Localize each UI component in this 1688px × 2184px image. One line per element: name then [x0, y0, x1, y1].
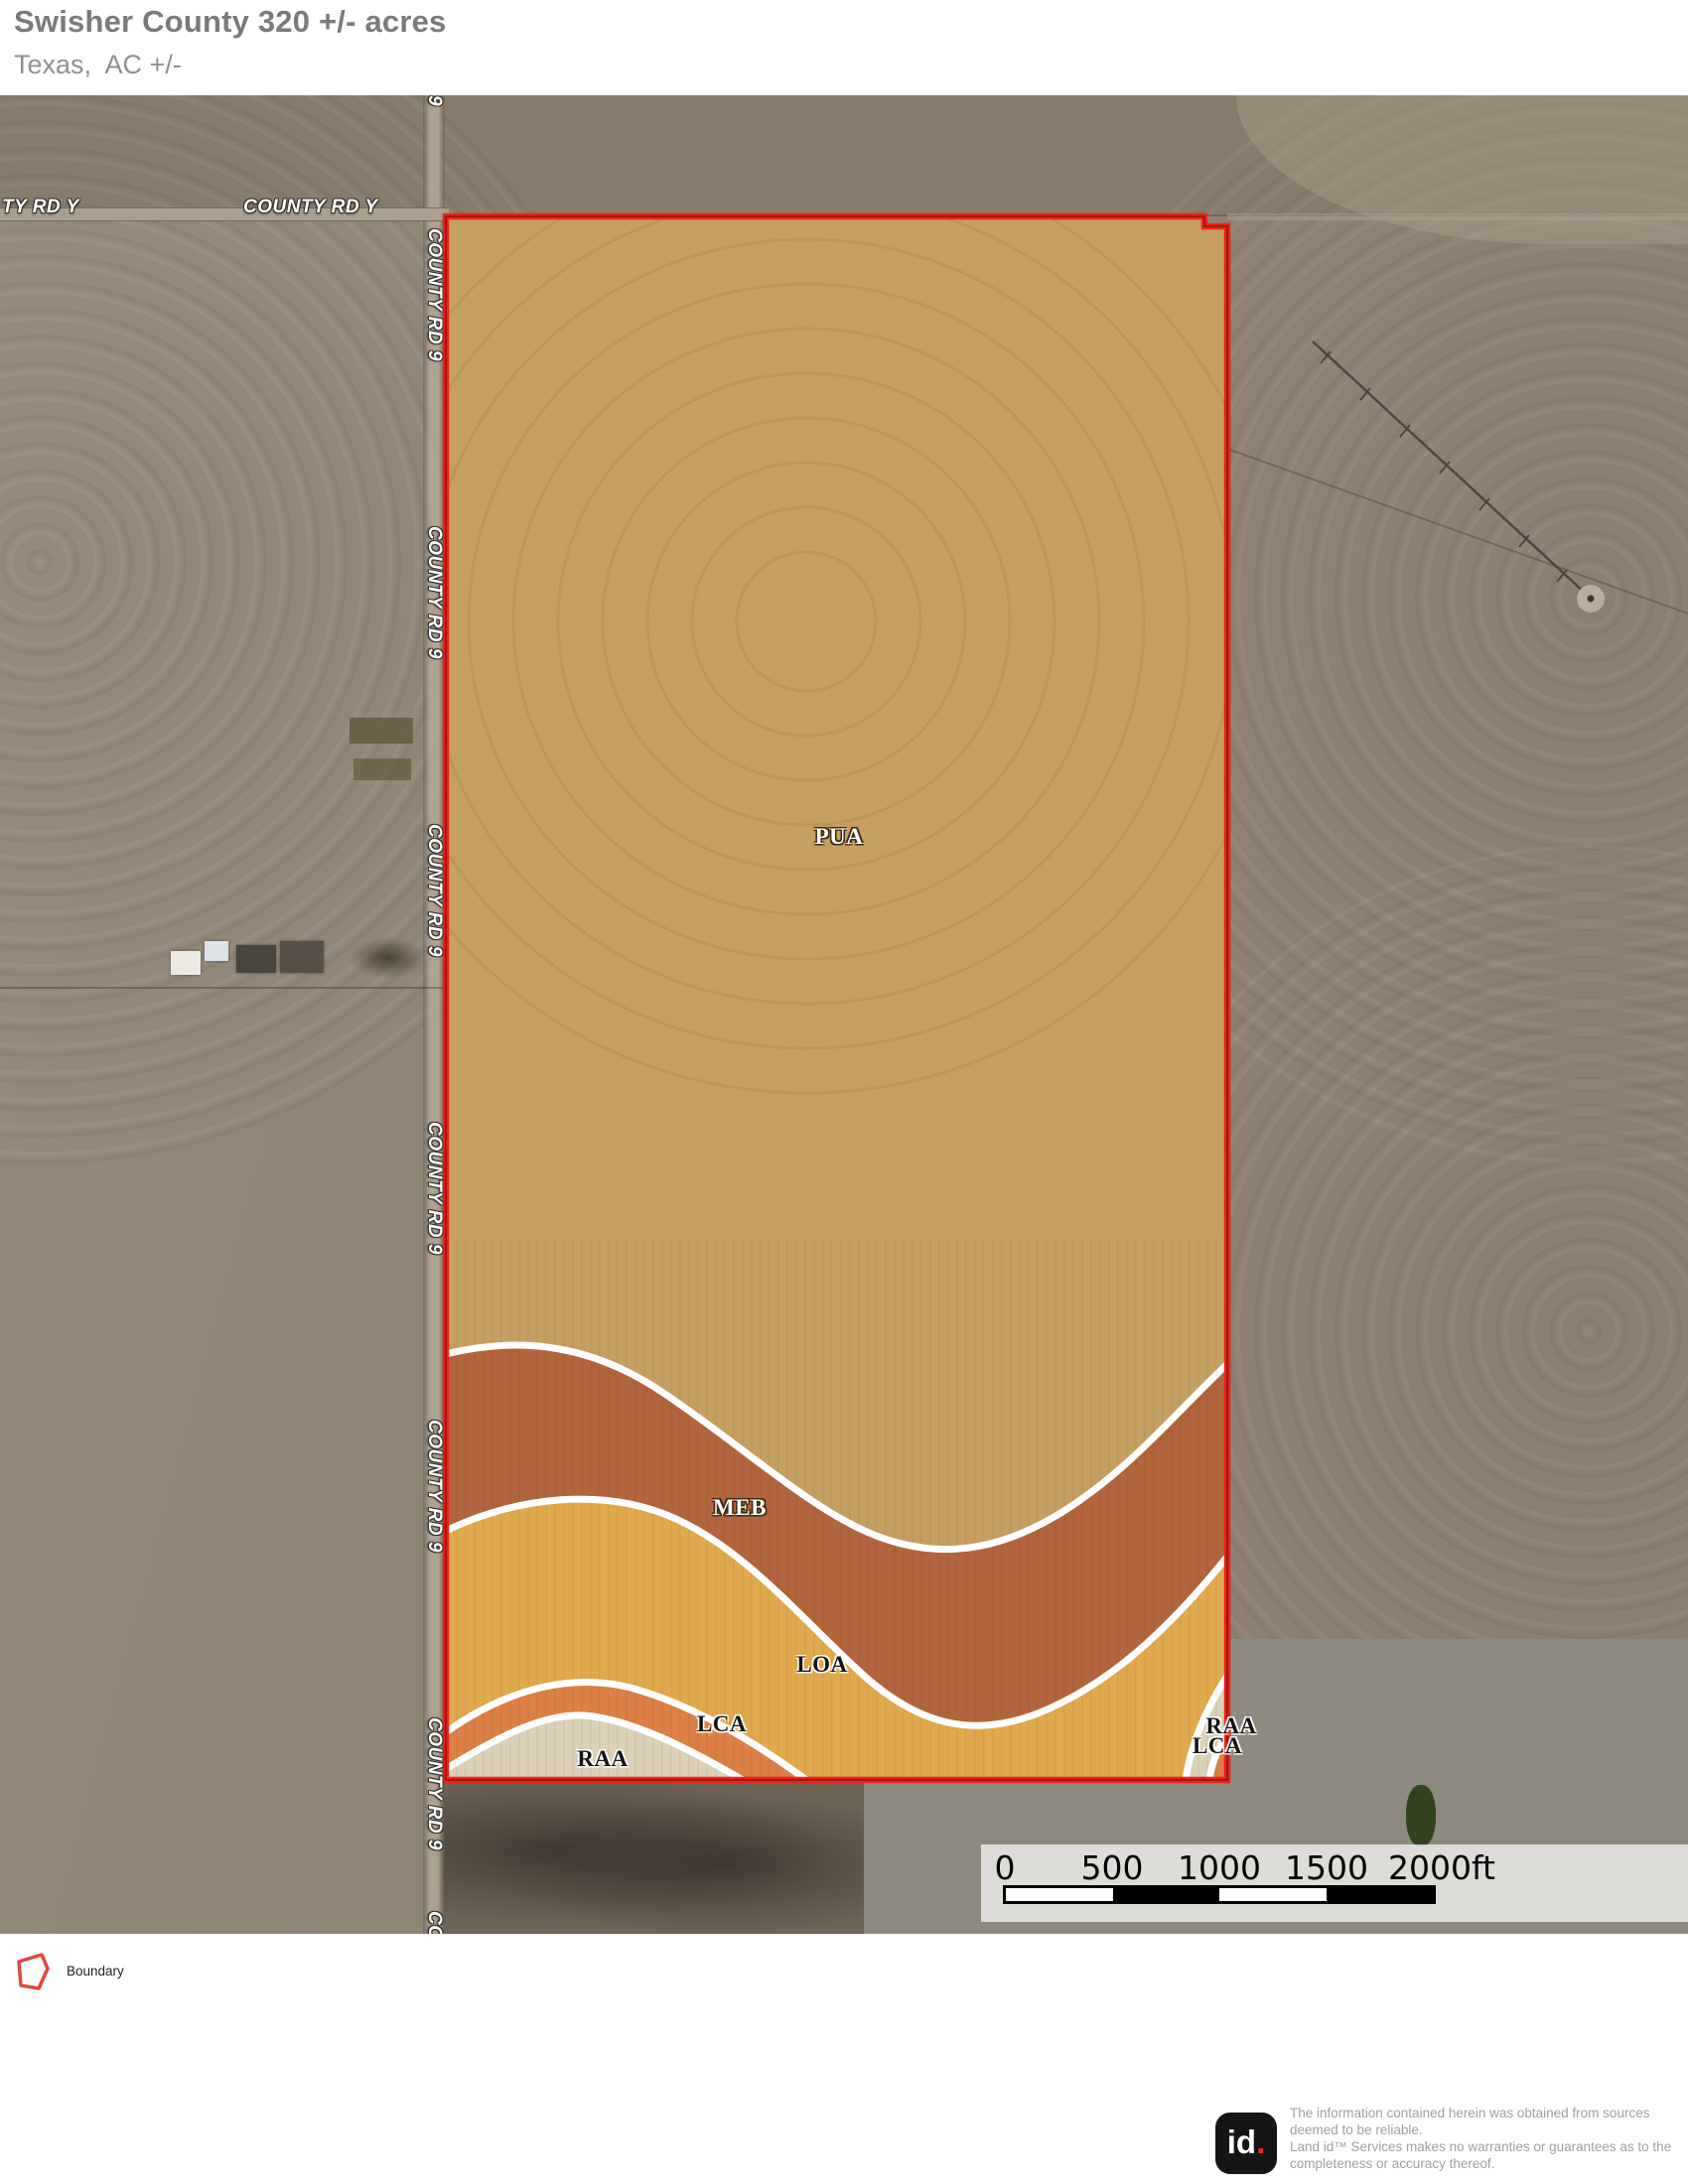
road-label-county-rd-9: COUNTY RD 9 — [423, 526, 445, 659]
road-label-county-rd-9: COUNTY RD 9 — [423, 1420, 445, 1553]
scale-tick: 1500 — [1285, 1848, 1368, 1887]
soil-label-lca-right: LCA — [1193, 1733, 1242, 1759]
road-label-county-rd-y: COUNTY RD Y — [243, 197, 378, 218]
road-label-county-rd-9-partial: 9 — [423, 95, 445, 106]
scale-bar-segments — [1003, 1885, 1436, 1904]
road-label-county-rd-9: COUNTY RD 9 — [423, 228, 445, 361]
crop-row-texture — [446, 1237, 1227, 1780]
page-subtitle: Texas, AC +/- — [14, 50, 182, 80]
scale-tick: 0 — [995, 1848, 1016, 1887]
boundary-polygon-icon — [13, 1952, 53, 1993]
scale-tick: 500 — [1081, 1848, 1144, 1887]
soil-label-raa: RAA — [577, 1746, 628, 1772]
scale-tick: 2000ft — [1388, 1848, 1495, 1887]
disclaimer: The information contained herein was obt… — [1290, 2105, 1688, 2172]
disclaimer-line: completeness or accuracy thereof. — [1290, 2155, 1688, 2172]
page-title: Swisher County 320 +/- acres — [14, 4, 446, 40]
disclaimer-line: Land id™ Services makes no warranties or… — [1290, 2138, 1688, 2155]
scale-bar: 0 500 1000 1500 2000ft — [981, 1844, 1688, 1922]
road-label-county-rd-9-clipped: COUNTY RD 9 — [423, 1911, 445, 1934]
scale-tick: 1000 — [1178, 1848, 1261, 1887]
road-label-county-rd-9: COUNTY RD 9 — [423, 1717, 445, 1850]
disclaimer-line: deemed to be reliable. — [1290, 2121, 1688, 2138]
legend-boundary-label: Boundary — [67, 1964, 124, 1979]
pivot-arm — [1227, 341, 1688, 614]
legend: Boundary — [0, 1934, 1688, 2045]
soil-label-lca: LCA — [697, 1711, 747, 1737]
soil-label-meb: MEB — [713, 1495, 767, 1521]
land-id-logo: id. — [1215, 2113, 1277, 2174]
road-label-county-rd-9: COUNTY RD 9 — [423, 824, 445, 957]
road-label-county-rd-9: COUNTY RD 9 — [423, 1122, 445, 1255]
disclaimer-line: The information contained herein was obt… — [1290, 2105, 1688, 2121]
logo-text: id — [1227, 2123, 1256, 2160]
map-canvas: TY RD Y COUNTY RD Y 9 COUNTY RD 9 COUNTY… — [0, 95, 1688, 1934]
road-label-county-rd-y-west: TY RD Y — [2, 197, 79, 218]
logo-dot: . — [1256, 2123, 1265, 2160]
soil-label-loa: LOA — [796, 1652, 847, 1678]
soil-label-pua: PUA — [815, 824, 864, 850]
